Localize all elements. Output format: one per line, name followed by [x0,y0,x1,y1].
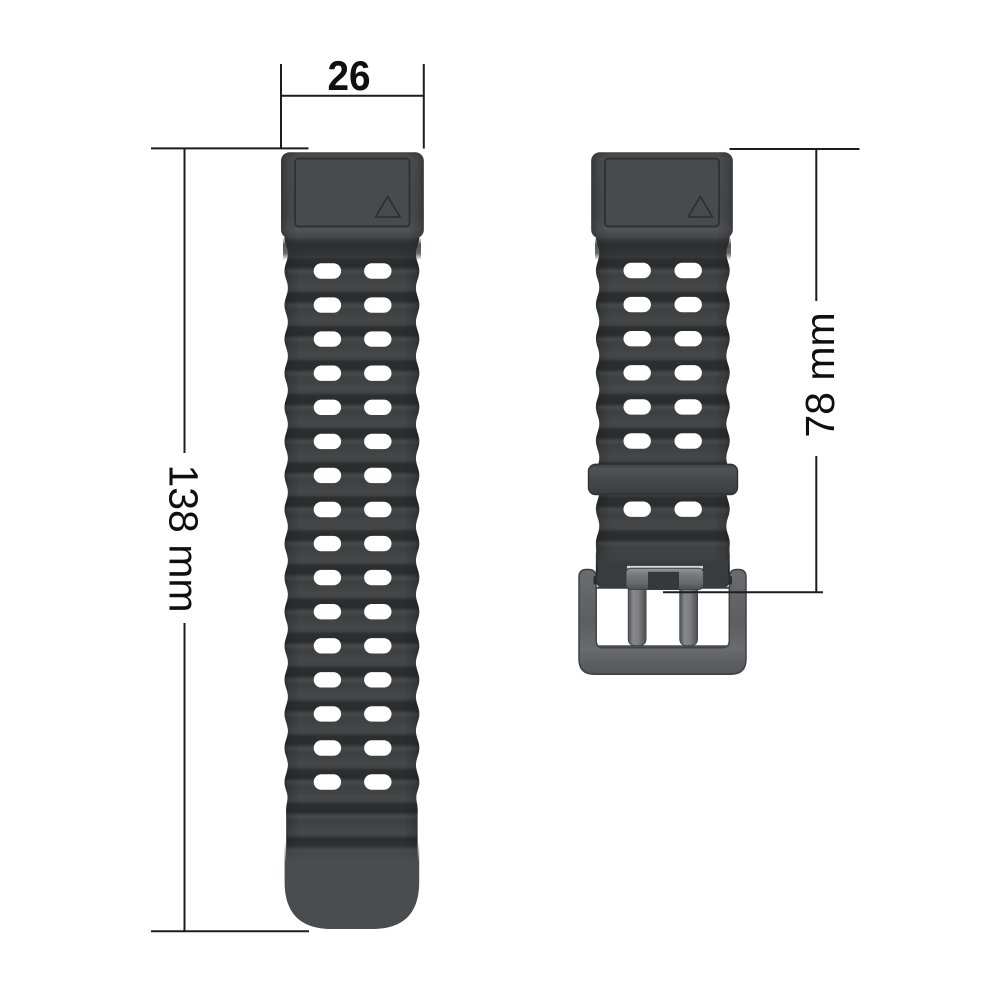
svg-text:138 mm: 138 mm [161,464,207,612]
svg-text:78 mm: 78 mm [797,312,843,437]
svg-text:26: 26 [328,52,371,99]
